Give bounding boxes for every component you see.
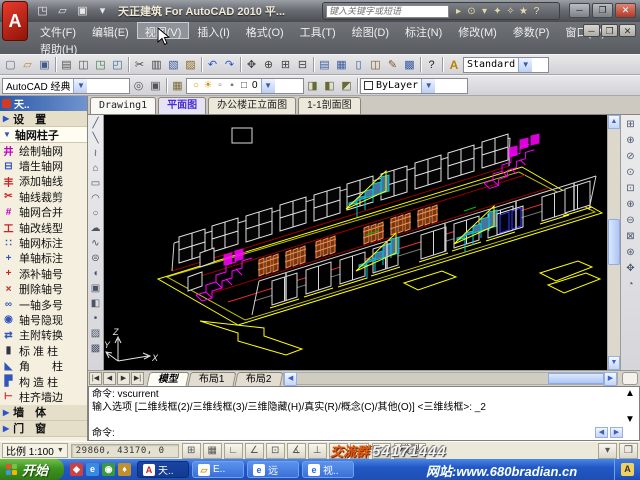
sheetset-manager-icon[interactable]: ◫ (367, 57, 384, 73)
toolbar-separator (201, 57, 202, 72)
snap-toggle[interactable]: ⊞ (182, 443, 201, 459)
item-label: 主附转换 (19, 327, 63, 343)
menu-插入(I)[interactable]: 插入(I) (189, 22, 237, 39)
menu-工具(T)[interactable]: 工具(T) (292, 22, 344, 39)
zoom-in-icon[interactable]: ⊕ (624, 197, 638, 212)
menu-修改(M)[interactable]: 修改(M) (450, 22, 505, 39)
layer-combo-icons: ○☀▫▪□ (190, 80, 250, 91)
group-arrow-icon: ▼ (3, 130, 11, 139)
command-history-line: 输入选项 [二维线框(2)/三维线框(3)/三维隐藏(H)/真实(R)/概念(C… (92, 401, 623, 427)
color-value: ByLayer (376, 80, 418, 91)
item-label: 角 柱 (19, 358, 63, 374)
scrollbar-thumb[interactable] (548, 373, 604, 384)
mdi-minimize-button[interactable]: ─ (583, 24, 600, 37)
status-bar: 比例 1:100 ▼ 29860, 43170, 0 ⊞▦∟∠⊡∡⊥↗≡ □ 模… (0, 441, 640, 459)
tab-布局2[interactable]: 布局2 (234, 372, 283, 386)
command-history-line: 命令: vscurrent (92, 388, 623, 401)
spline-icon[interactable]: ∿ (89, 236, 103, 251)
publish-icon[interactable]: ◳ (92, 57, 109, 73)
tarch-menu-titlebar[interactable]: 天.. (0, 96, 87, 111)
zoom-toolbar: ⊞⊕⊘⊙⊡⊕⊖⊠⊛✥◔ (620, 115, 640, 370)
task-icon: e (253, 464, 265, 476)
qq-group-watermark: 交流群 54171444 (330, 441, 447, 460)
paste-icon[interactable]: ▧ (165, 57, 182, 73)
toolbar-separator (313, 57, 314, 72)
document-tab-bar: Drawing1 平面图办公楼正立面图1-1剖面图 (88, 96, 640, 115)
zoom-scale-icon[interactable]: ⊘ (624, 149, 638, 164)
layer-on-bulb-icon[interactable]: ○ (190, 80, 202, 91)
chevron-down-icon[interactable]: ▼ (261, 79, 275, 93)
maximize-button[interactable]: ❐ (592, 3, 613, 18)
scrollbar-thumb[interactable] (608, 219, 620, 265)
item-label: 构 造 柱 (19, 374, 58, 390)
markup-icon[interactable]: ✎ (384, 57, 401, 73)
item-label: 轴改线型 (19, 220, 63, 236)
qat-dropdown-icon[interactable]: ▾ (94, 3, 111, 19)
workspace-value: AutoCAD 经典 (6, 78, 70, 93)
pan-icon[interactable]: ✥ (243, 57, 260, 73)
sidebar-item-墙生轴网[interactable]: ⊟墙生轴网 (0, 158, 87, 173)
chevron-down-icon: ▼ (57, 447, 64, 454)
minimize-button[interactable]: ─ (569, 3, 590, 18)
zoom-previous-icon[interactable]: ⊟ (294, 57, 311, 73)
tray-input-language-icon[interactable]: A (621, 463, 634, 476)
save-icon[interactable]: ▣ (36, 57, 53, 73)
zoom-window-icon[interactable]: ⊞ (277, 57, 294, 73)
ucs-labels: Z X Y (104, 327, 159, 363)
system-tray: A (614, 459, 640, 480)
item-label: 删除轴号 (19, 281, 63, 297)
standard-toolbar-icons: ▢▱▣▤◫◳◰✂▥▧▨↶↷✥⊕⊞⊟▤▦▯◫✎▩? (2, 57, 440, 73)
layer-properties-icon[interactable]: ▦ (169, 78, 186, 94)
title-bar: A ◳▱▣▾ 天正建筑 For AutoCAD 2010 平... ▸⊙▾✦✧★… (0, 0, 640, 22)
windows-flag-icon (6, 464, 18, 476)
line-icon[interactable]: ╱ (89, 116, 103, 131)
print-preview-icon[interactable]: ◫ (75, 57, 92, 73)
sidebar-item-标 准 柱[interactable]: ▮标 准 柱 (0, 343, 87, 358)
infocenter-search-input[interactable] (326, 5, 449, 18)
quick-access-toolbar: ◳▱▣▾ (34, 3, 111, 19)
mdi-restore-button[interactable]: ❐ (601, 24, 618, 37)
toolbar-separator (357, 78, 358, 93)
text-style-value: Standard (467, 59, 515, 70)
scroll-left-icon[interactable]: ◀ (595, 427, 608, 438)
scale-control[interactable]: 比例 1:100 ▼ (2, 443, 68, 458)
clean-screen-icon[interactable]: ❒ (619, 443, 638, 459)
coordinate-readout[interactable]: 29860, 43170, 0 (71, 444, 179, 458)
group-arrow-icon: ▶ (3, 424, 9, 433)
tab-label: 模型 (158, 373, 178, 386)
command-line-panel[interactable]: 命令: vscurrent 输入选项 [二维线框(2)/三维线框(3)/三维隐藏… (88, 386, 640, 441)
layout-nav-▶|[interactable]: ▶| (131, 372, 144, 385)
ducs-toggle[interactable]: ⊥ (308, 443, 327, 459)
tarch-screen-menu: 天.. ▶设 置▼轴网柱子井绘制轴网⊟墙生轴网丰添加轴线✂轴线裁剪#轴网合并工轴… (0, 96, 88, 441)
layer-freeze-sun-icon[interactable]: ☀ (202, 80, 214, 91)
item-label: 一轴多号 (19, 297, 63, 313)
command-icon: 丰 (2, 174, 15, 189)
workspace-settings-gear-icon[interactable]: ◎ (130, 78, 147, 94)
chevron-down-icon[interactable]: ▼ (73, 79, 87, 93)
tab-布局1[interactable]: 布局1 (188, 372, 237, 386)
sidebar-item-角 柱[interactable]: ◣角 柱 (0, 358, 87, 373)
chevron-down-icon[interactable]: ▼ (518, 58, 532, 72)
mdi-window-controls: ─ ❐ ✕ (583, 24, 636, 37)
sidebar-item-轴线裁剪[interactable]: ✂轴线裁剪 (0, 189, 87, 204)
plot-icon[interactable]: ◰ (109, 57, 126, 73)
scale-value: 比例 1:100 (6, 443, 54, 458)
tab-模型[interactable]: 模型 (147, 372, 190, 386)
command-icon: × (2, 284, 15, 295)
sidebar-item-主附转换[interactable]: ⇄主附转换 (0, 328, 87, 343)
command-horizontal-scrollbar[interactable]: ◀ ▶ (595, 427, 623, 438)
tarch-menu-title: 天.. (14, 96, 30, 111)
make-object-layer-icon[interactable]: ◨ (304, 78, 321, 94)
infocenter-icons: ▸⊙▾✦✧★? (452, 6, 543, 17)
task-ie-1[interactable]: e远 (247, 461, 299, 478)
layout-nav-◀[interactable]: ◀ (103, 372, 116, 385)
rectangle-icon[interactable]: ▭ (89, 176, 103, 191)
zoom-dynamic-icon[interactable]: ⊕ (624, 133, 638, 148)
menu-参数(P)[interactable]: 参数(P) (505, 22, 558, 39)
workspace-combo[interactable]: AutoCAD 经典 ▼ (2, 78, 130, 94)
qat-workspace-icon[interactable]: ◳ (34, 3, 51, 19)
item-label: 添加轴线 (19, 173, 63, 189)
view-tabs: 平面图办公楼正立面图1-1剖面图 (158, 97, 360, 114)
tarch-logo-icon (2, 99, 11, 108)
layers-toolbar: AutoCAD 经典 ▼ ◎▣ ▦ ○☀▫▪□ 0 ▼ ◨◧◩ ByLayer … (0, 75, 640, 96)
scroll-down-icon[interactable]: ▼ (608, 356, 620, 370)
insert-block-icon[interactable]: ▣ (89, 281, 103, 296)
text-style-icon: A (445, 58, 463, 72)
toolbar-separator (55, 57, 56, 72)
sidebar-item-轴网标注[interactable]: ∷轴网标注 (0, 235, 87, 250)
menu-绘图(D)[interactable]: 绘图(D) (344, 22, 397, 39)
polyline-icon[interactable]: ≀ (89, 146, 103, 161)
chevron-down-icon[interactable]: ▼ (421, 79, 435, 93)
tarch-menu-items: ▶设 置▼轴网柱子井绘制轴网⊟墙生轴网丰添加轴线✂轴线裁剪#轴网合并工轴改线型∷… (0, 111, 87, 437)
sidebar-item-轴网合并[interactable]: #轴网合并 (0, 205, 87, 220)
status-right-icons: ▾❒ (598, 443, 638, 459)
zoom-all-icon[interactable]: ⊠ (624, 229, 638, 244)
help-icon[interactable]: ? (530, 6, 543, 17)
layer-combo[interactable]: ○☀▫▪□ 0 ▼ (186, 78, 304, 94)
make-block-icon[interactable]: ◧ (89, 296, 103, 311)
item-label: 添补轴号 (19, 266, 63, 282)
sidebar-item-添补轴号[interactable]: +添补轴号 (0, 266, 87, 281)
task-explorer[interactable]: ▱E.. (192, 461, 244, 478)
ucs-x-label: X (151, 353, 159, 363)
scroll-up-icon[interactable]: ▲ (608, 115, 620, 129)
search-binoculars-icon[interactable]: ⊙ (465, 6, 478, 17)
quicklaunch-desktop-icon[interactable]: ◉ (102, 463, 115, 476)
sidebar-item-绘制轴网[interactable]: 井绘制轴网 (0, 143, 87, 158)
sidebar-group-settings[interactable]: ▶设 置 (0, 111, 87, 127)
arc-icon[interactable]: ◠ (89, 191, 103, 206)
tool-palettes-icon[interactable]: ▯ (350, 57, 367, 73)
selection-rectangle (232, 128, 252, 143)
task-icon: e (308, 464, 320, 476)
menu-标注(N)[interactable]: 标注(N) (397, 22, 450, 39)
match-properties-icon[interactable]: ▨ (182, 57, 199, 73)
quick-launch: ◆e◉♦ (70, 463, 131, 476)
layout-tab-bar: |◀◀▶▶| 模型布局1布局2 ◀ ▶ (88, 370, 640, 386)
group-arrow-icon: ▶ (3, 408, 9, 417)
print-icon[interactable]: ▤ (58, 57, 75, 73)
start-label: 开始 (22, 460, 48, 479)
command-icon: ∷ (2, 238, 15, 249)
tarch-autocad-window: A ◳▱▣▾ 天正建筑 For AutoCAD 2010 平... ▸⊙▾✦✧★… (0, 0, 640, 480)
tab-view-平面图[interactable]: 平面图 (158, 97, 206, 114)
group-arrow-icon: ▶ (3, 114, 9, 123)
task-icon: A (143, 464, 155, 476)
command-icon: 工 (2, 220, 15, 235)
zoom-realtime-icon[interactable]: ⊕ (260, 57, 277, 73)
favorites-star-icon[interactable]: ★ (517, 6, 530, 17)
orbit-icon[interactable]: ◔ (624, 277, 638, 292)
sidebar-item-柱齐墙边[interactable]: ⊢柱齐墙边 (0, 389, 87, 404)
group-label: 墙 体 (13, 404, 46, 420)
menu-文件(F)[interactable]: 文件(F) (32, 22, 84, 39)
command-icon: # (2, 207, 15, 218)
open-icon[interactable]: ▱ (19, 57, 36, 73)
infocenter-expand-icon[interactable]: ▸ (452, 6, 465, 17)
toolbar-separator (420, 57, 421, 72)
layer-plot-icon[interactable]: ▪ (226, 80, 238, 91)
sidebar-group-grid-column[interactable]: ▼轴网柱子 (0, 127, 87, 143)
color-swatch-icon (364, 81, 373, 90)
qq-group-label: 交流群 (330, 444, 369, 459)
ucs-y-label: Y (104, 340, 111, 350)
otrack-toggle[interactable]: ∡ (287, 443, 306, 459)
item-label: 标 准 柱 (19, 343, 58, 359)
command-icon: 井 (2, 143, 15, 158)
designcenter-icon[interactable]: ▦ (333, 57, 350, 73)
subscription-center-icon[interactable]: ✧ (504, 6, 517, 17)
circle-icon[interactable]: ○ (89, 206, 103, 221)
pan-realtime-icon[interactable]: ✥ (624, 261, 638, 276)
current-layer-value: 0 (252, 80, 258, 91)
sidebar-group-door-window[interactable]: ▶门 窗 (0, 421, 87, 437)
item-label: 单轴标注 (19, 250, 63, 266)
mouse-cursor (157, 27, 170, 46)
item-label: 柱齐墙边 (19, 389, 63, 405)
polygon-icon[interactable]: ⌂ (89, 161, 103, 176)
website-watermark: 网站:www.680bradian.cn (426, 461, 577, 480)
canvas-horizontal-scrollbar[interactable]: ◀ ▶ (283, 372, 618, 385)
sidebar-item-轴改线型[interactable]: 工轴改线型 (0, 220, 87, 235)
window-grip[interactable] (622, 372, 638, 385)
layer-state-icons: ◨◧◩ (304, 78, 355, 94)
qat-save-icon[interactable]: ▣ (74, 3, 91, 19)
command-icon: + (2, 253, 15, 264)
layout-tab-nav: |◀◀▶▶| (88, 372, 144, 385)
layout-nav-|◀[interactable]: |◀ (89, 372, 102, 385)
task-label: 远 (268, 462, 278, 477)
command-icon: ◉ (2, 314, 15, 325)
tab-label: 布局2 (245, 373, 271, 386)
sidebar-item-单轴标注[interactable]: +单轴标注 (0, 251, 87, 266)
scroll-right-icon[interactable]: ▶ (610, 427, 623, 438)
quicklaunch-ie-icon[interactable]: e (86, 463, 99, 476)
ucs-icon (106, 337, 150, 361)
zoom-center-icon[interactable]: ⊙ (624, 165, 638, 180)
revcloud-icon[interactable]: ☁ (89, 221, 103, 236)
standard-toolbar: ▢▱▣▤◫◳◰✂▥▧▨↶↷✥⊕⊞⊟▤▦▯◫✎▩? A Standard ▼ (0, 54, 640, 75)
canvas-vertical-scrollbar[interactable]: ▲ ▼ (607, 115, 620, 370)
tab-drawing1[interactable]: Drawing1 (90, 97, 156, 114)
command-icon: ∞ (2, 299, 15, 310)
scroll-up-icon[interactable]: ▲ (625, 388, 638, 400)
command-icon: ✂ (2, 191, 15, 202)
drawing-canvas[interactable]: Z X Y (104, 115, 607, 370)
toolbar-separator (166, 78, 167, 93)
menu-编辑(E)[interactable]: 编辑(E) (84, 22, 137, 39)
scroll-left-icon[interactable]: ◀ (284, 372, 297, 386)
draw-toolbar: ╱╲≀⌂▭◠○☁∿⊜◖▣◧•▨▩ (88, 115, 104, 370)
mdi-close-button[interactable]: ✕ (619, 24, 636, 37)
task-icon: ▱ (198, 464, 210, 476)
group-label: 门 窗 (13, 420, 46, 436)
autocad-logo-icon[interactable]: A (2, 1, 28, 41)
ellipse-arc-icon[interactable]: ◖ (89, 266, 103, 281)
item-label: 轴号隐现 (19, 312, 63, 328)
polar-toggle[interactable]: ∠ (245, 443, 264, 459)
cut-icon[interactable]: ✂ (131, 57, 148, 73)
quicklaunch-player-icon[interactable]: ♦ (118, 463, 131, 476)
item-label: 轴网合并 (19, 204, 63, 220)
sidebar-item-构 造 柱[interactable]: ▛构 造 柱 (0, 374, 87, 389)
command-icon: ▛ (2, 376, 15, 387)
sidebar-item-添加轴线[interactable]: 丰添加轴线 (0, 174, 87, 189)
item-label: 绘制轴网 (19, 143, 63, 159)
quickcalc-icon[interactable]: ▩ (401, 57, 418, 73)
text-style-combo[interactable]: Standard ▼ (463, 57, 549, 73)
command-icon: + (2, 268, 15, 279)
scroll-down-icon[interactable]: ▼ (625, 414, 638, 426)
sidebar-item-删除轴号[interactable]: ×删除轴号 (0, 282, 87, 297)
menu-bar: 文件(F)编辑(E)视图(V)插入(I)格式(O)工具(T)绘图(D)标注(N)… (0, 22, 640, 54)
sidebar-item-一轴多号[interactable]: ∞一轴多号 (0, 297, 87, 312)
tab-view-1-1剖面图[interactable]: 1-1剖面图 (298, 97, 360, 114)
workspace-icons: ◎▣ (130, 78, 164, 94)
undo-icon[interactable]: ↶ (204, 57, 221, 73)
window-controls: ─ ❐ ✕ (569, 3, 636, 18)
command-icon: ◣ (2, 361, 15, 372)
command-prompt-line[interactable]: 命令: (92, 427, 623, 440)
search-dropdown-icon[interactable]: ▾ (478, 6, 491, 17)
task-label: E.. (213, 464, 225, 475)
tab-view-办公楼正立面图[interactable]: 办公楼正立面图 (208, 97, 296, 114)
ellipse-icon[interactable]: ⊜ (89, 251, 103, 266)
layer-lock-icon[interactable]: ▫ (214, 80, 226, 91)
task-label: 视.. (323, 462, 339, 477)
zoom-extents-icon[interactable]: ⊛ (624, 245, 638, 260)
group-label: 设 置 (13, 111, 46, 127)
task-ie-2[interactable]: e视.. (302, 461, 354, 478)
drawing-region: ╱╲≀⌂▭◠○☁∿⊜◖▣◧•▨▩ (88, 115, 640, 370)
zoom-object-icon[interactable]: ⊡ (624, 181, 638, 196)
toolbar-separator (128, 57, 129, 72)
ortho-toggle[interactable]: ∟ (224, 443, 243, 459)
copy-icon[interactable]: ▥ (148, 57, 165, 73)
properties-icon[interactable]: ▤ (316, 57, 333, 73)
help-question-icon[interactable]: ? (423, 57, 440, 73)
command-icon: ▮ (2, 345, 15, 356)
gradient-icon[interactable]: ▩ (89, 341, 103, 356)
menu-row-1: 文件(F)编辑(E)视图(V)插入(I)格式(O)工具(T)绘图(D)标注(N)… (32, 22, 613, 39)
command-icon: ⊟ (2, 161, 15, 172)
command-icon: ⊢ (2, 391, 15, 402)
communication-center-icon[interactable]: ✦ (491, 6, 504, 17)
task-buttons: A天..▱E..e远e视.. (137, 461, 357, 478)
sidebar-group-wall[interactable]: ▶墙 体 (0, 405, 87, 421)
zoom-out-icon[interactable]: ⊖ (624, 213, 638, 228)
item-label: 轴线裁剪 (19, 189, 63, 205)
redo-icon[interactable]: ↷ (221, 57, 238, 73)
toolbar-separator (442, 57, 443, 72)
color-combo[interactable]: ByLayer ▼ (360, 78, 468, 94)
layer-previous-icon[interactable]: ◧ (321, 78, 338, 94)
close-button[interactable]: ✕ (615, 3, 636, 18)
layer-color-swatch-icon[interactable]: □ (238, 80, 250, 91)
infocenter: ▸⊙▾✦✧★? (322, 2, 560, 20)
ucs-z-label: Z (112, 327, 119, 337)
quicklaunch-media-icon[interactable]: ◆ (70, 463, 83, 476)
construction-line-icon[interactable]: ╲ (89, 131, 103, 146)
toolbar-unlock-icon[interactable]: ▾ (598, 443, 617, 459)
menu-格式(O)[interactable]: 格式(O) (238, 22, 292, 39)
3d-building-wireframe: Z X Y (104, 115, 607, 370)
task-tarch[interactable]: A天.. (137, 461, 189, 478)
command-icon: ⇄ (2, 330, 15, 341)
window-title: 天正建筑 For AutoCAD 2010 平... (118, 3, 318, 19)
item-label: 墙生轴网 (19, 158, 63, 174)
group-label: 轴网柱子 (15, 127, 59, 143)
qq-group-number: 54171444 (372, 443, 447, 460)
zoom-window-icon[interactable]: ⊞ (624, 117, 638, 132)
layer-states-icon[interactable]: ◩ (338, 78, 355, 94)
layout-tabs: 模型布局1布局2 (147, 372, 281, 386)
sidebar-item-轴号隐现[interactable]: ◉轴号隐现 (0, 312, 87, 327)
workspace-save-icon[interactable]: ▣ (147, 78, 164, 94)
start-button[interactable]: 开始 (0, 459, 64, 480)
scroll-right-icon[interactable]: ▶ (604, 372, 617, 386)
osnap-toggle[interactable]: ⊡ (266, 443, 285, 459)
command-vertical-scrollbar[interactable]: ▲ ▼ (625, 388, 638, 426)
toolbar-separator (240, 57, 241, 72)
hatch-icon[interactable]: ▨ (89, 326, 103, 341)
qat-open-icon[interactable]: ▱ (54, 3, 71, 19)
tab-label: 布局1 (199, 373, 225, 386)
task-label: 天.. (158, 462, 174, 477)
grid-toggle[interactable]: ▦ (203, 443, 222, 459)
item-label: 轴网标注 (19, 235, 63, 251)
new-icon[interactable]: ▢ (2, 57, 19, 73)
layout-nav-▶[interactable]: ▶ (117, 372, 130, 385)
point-icon[interactable]: • (89, 311, 103, 326)
